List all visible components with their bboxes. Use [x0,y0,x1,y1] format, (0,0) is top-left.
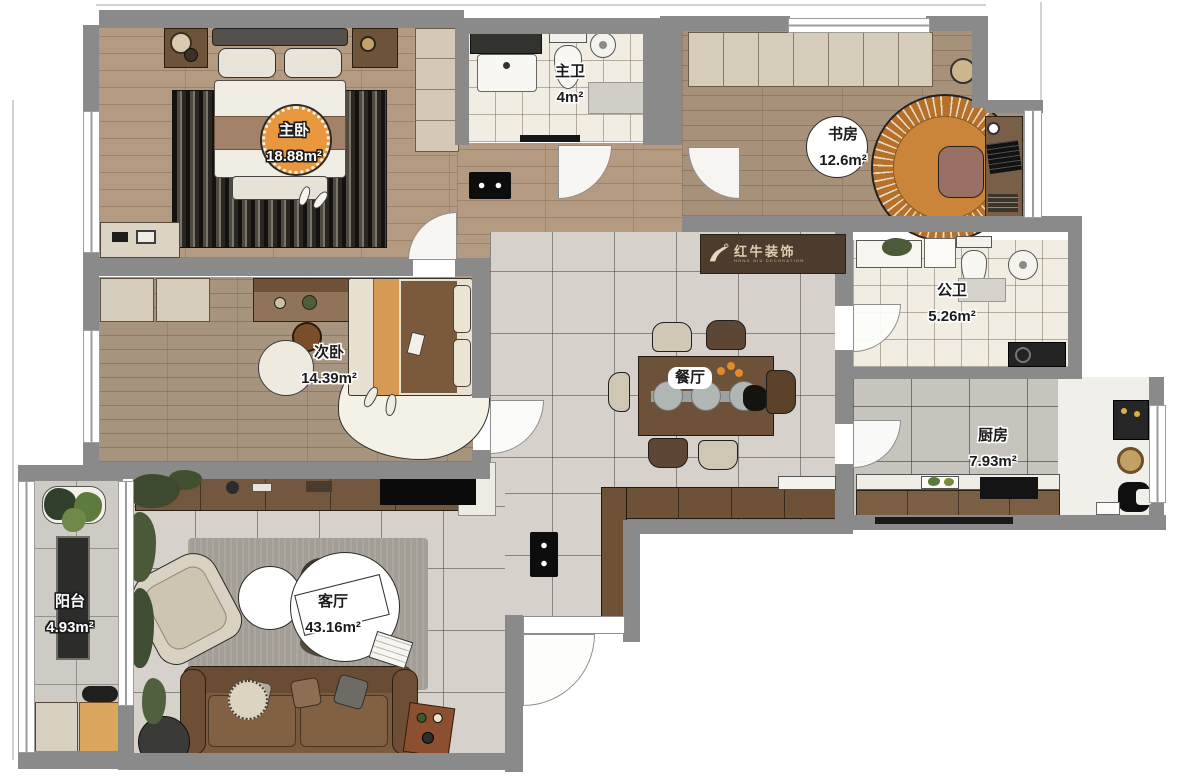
brand-text: 红牛装饰 HONG NIU DECORATION [734,245,804,264]
wall [853,367,1082,379]
room-label-second-bedroom: 次卧 14.39m² [301,340,357,392]
tv [380,479,476,505]
room-area: 18.88m² [266,144,322,170]
wall [643,28,682,145]
window [1024,110,1042,218]
room-label-balcony: 阳台 4.93m² [46,589,94,641]
storage-box [79,702,119,752]
wall [83,276,99,332]
wall [455,258,490,276]
wall [455,18,670,34]
room-label-dining: 餐厅 [668,365,712,391]
window [118,481,134,706]
dining-chair [608,372,630,412]
wall [33,465,123,481]
window [788,18,930,33]
shower-head-dot [599,41,607,49]
washing-machine [1008,342,1066,367]
room-label-master-bath: 主卫 4m² [555,59,585,111]
bed [348,278,473,396]
nightstand [352,28,398,68]
room-label-study: 书房 12.6m² [819,122,867,174]
dining-chair [652,322,692,352]
frame-line [1040,2,1042,114]
fruit [717,367,725,375]
books [988,194,1018,212]
wall [18,465,34,481]
bath-mat [588,82,650,114]
room-label-kitchen: 厨房 7.93m² [969,423,1017,475]
room-name: 主卫 [555,59,585,85]
wall [118,753,523,770]
shower-head-dot [1019,261,1027,269]
wall [99,10,464,28]
sofa [183,666,413,757]
desk-chair [938,146,984,198]
wall [472,276,490,398]
decor-dish [252,483,272,492]
study-closet [688,32,933,87]
bed-blanket-orange [373,279,399,395]
fridge-panel [1113,400,1149,440]
decor-plate [302,295,317,310]
room-label-living: 客厅 43.16m² [305,589,361,641]
bottle [421,731,435,745]
room-area: 14.39m² [301,366,357,392]
laptop [986,140,1022,174]
sideboard [625,487,837,519]
coffee-cup [987,122,1000,135]
window [18,481,35,753]
brand-logo-board: ® 红牛装饰 HONG NIU DECORATION [700,234,846,274]
wardrobe [156,278,210,322]
wall [1068,232,1082,379]
dish [1096,502,1120,515]
decor-books [306,481,332,492]
bottle [416,712,427,723]
decor-plate [360,36,376,52]
pillow [453,339,471,387]
floor-plan: ® 红牛装饰 HONG NIU DECORATION 主卧 18.88m² 主卫… [0,0,1180,784]
dining-chair [648,438,688,468]
room-area: 5.26m² [928,304,976,330]
bath-sink [477,54,537,92]
fruit [735,369,743,377]
ceiling-light [530,532,558,577]
wall [835,350,853,424]
decor-plate [274,297,286,309]
room-name: 客厅 [305,589,361,615]
wardrobe [100,278,154,322]
wall [623,520,640,642]
storage-bin [82,686,118,702]
bed-headboard [212,28,348,46]
tray [778,476,836,490]
faucet [503,62,510,69]
wall [83,258,413,276]
pillow [453,285,471,333]
storage-box [35,702,78,752]
wall [835,464,853,520]
room-name: 书房 [819,122,867,148]
decor-wall-plate [228,680,268,720]
wall [505,615,523,772]
pillow [218,48,276,78]
fruit [727,362,735,370]
dining-chair [698,440,738,470]
ceiling-light [469,172,511,199]
wall [83,25,99,113]
wall [1149,377,1164,407]
room-label-public-bath: 公卫 5.26m² [928,278,976,330]
wall [623,520,853,534]
decor-frame [136,230,156,244]
window [1149,405,1166,503]
washer-cabinet [924,238,956,268]
frame-line [96,4,986,6]
window [83,111,100,253]
bath-door-threshold [520,135,580,142]
window [83,330,100,443]
frame-line [12,100,14,760]
fridge-dot [1121,408,1127,414]
wall [118,703,133,753]
room-name: 次卧 [301,340,357,366]
dining-chair [706,320,746,350]
room-label-master-bedroom: 主卧 18.88m² [266,118,322,170]
wall [455,28,469,145]
room-area: 43.16m² [305,615,361,641]
armchair-cushion [140,562,231,655]
room-area: 4m² [555,85,585,111]
room-name: 厨房 [969,423,1017,449]
decor-bowl [226,481,239,494]
entrance-door-arc [523,634,595,706]
wall [18,751,131,769]
toilet-tank [956,236,992,248]
decor-cup [184,48,198,62]
room-area: 7.93m² [969,449,1017,475]
brand-name-en: HONG NIU DECORATION [734,258,804,264]
entrance-door-leaf [523,616,625,634]
washer-drum [1015,347,1031,363]
cooking-pot [1117,447,1144,474]
wardrobe [415,28,459,152]
bed-foot-blanket [232,176,328,200]
bar-cart [403,702,456,758]
room-area: 4.93m² [46,615,94,641]
brand-name: 红牛装饰 [734,245,804,258]
room-name: 阳台 [46,589,94,615]
bottle [432,712,443,723]
decor-camera [112,232,128,242]
pillow [284,48,342,78]
room-area: 12.6m² [819,148,867,174]
room-name: 公卫 [928,278,976,304]
room-name: 餐厅 [668,367,712,389]
wall [972,28,988,108]
fridge-dot [1134,411,1140,417]
bull-icon: ® [707,243,729,265]
throw-pillow [290,677,322,709]
kitchen-window-band [875,517,1013,524]
wall [682,216,1082,232]
stove [980,477,1038,499]
room-name: 主卧 [266,118,322,144]
dining-chair [766,370,796,414]
